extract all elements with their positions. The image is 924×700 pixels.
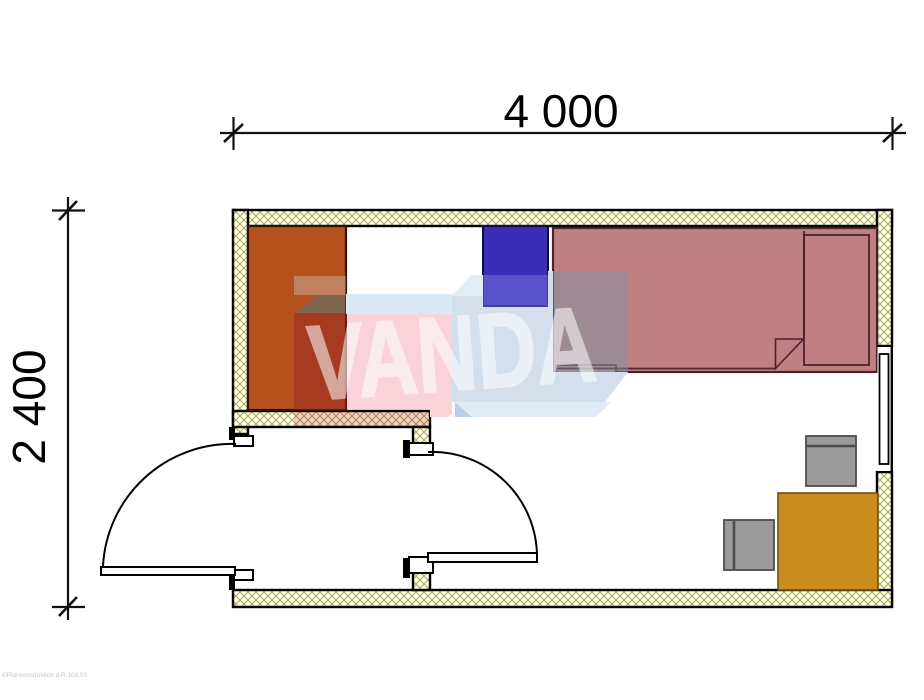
svg-text:2 400: 2 400: [3, 349, 55, 464]
svg-text:VANDA: VANDA: [304, 285, 600, 423]
svg-text:4 000: 4 000: [503, 85, 618, 137]
svg-text:©Plankonstruktion d.R.103.03: ©Plankonstruktion d.R.103.03: [2, 671, 87, 679]
